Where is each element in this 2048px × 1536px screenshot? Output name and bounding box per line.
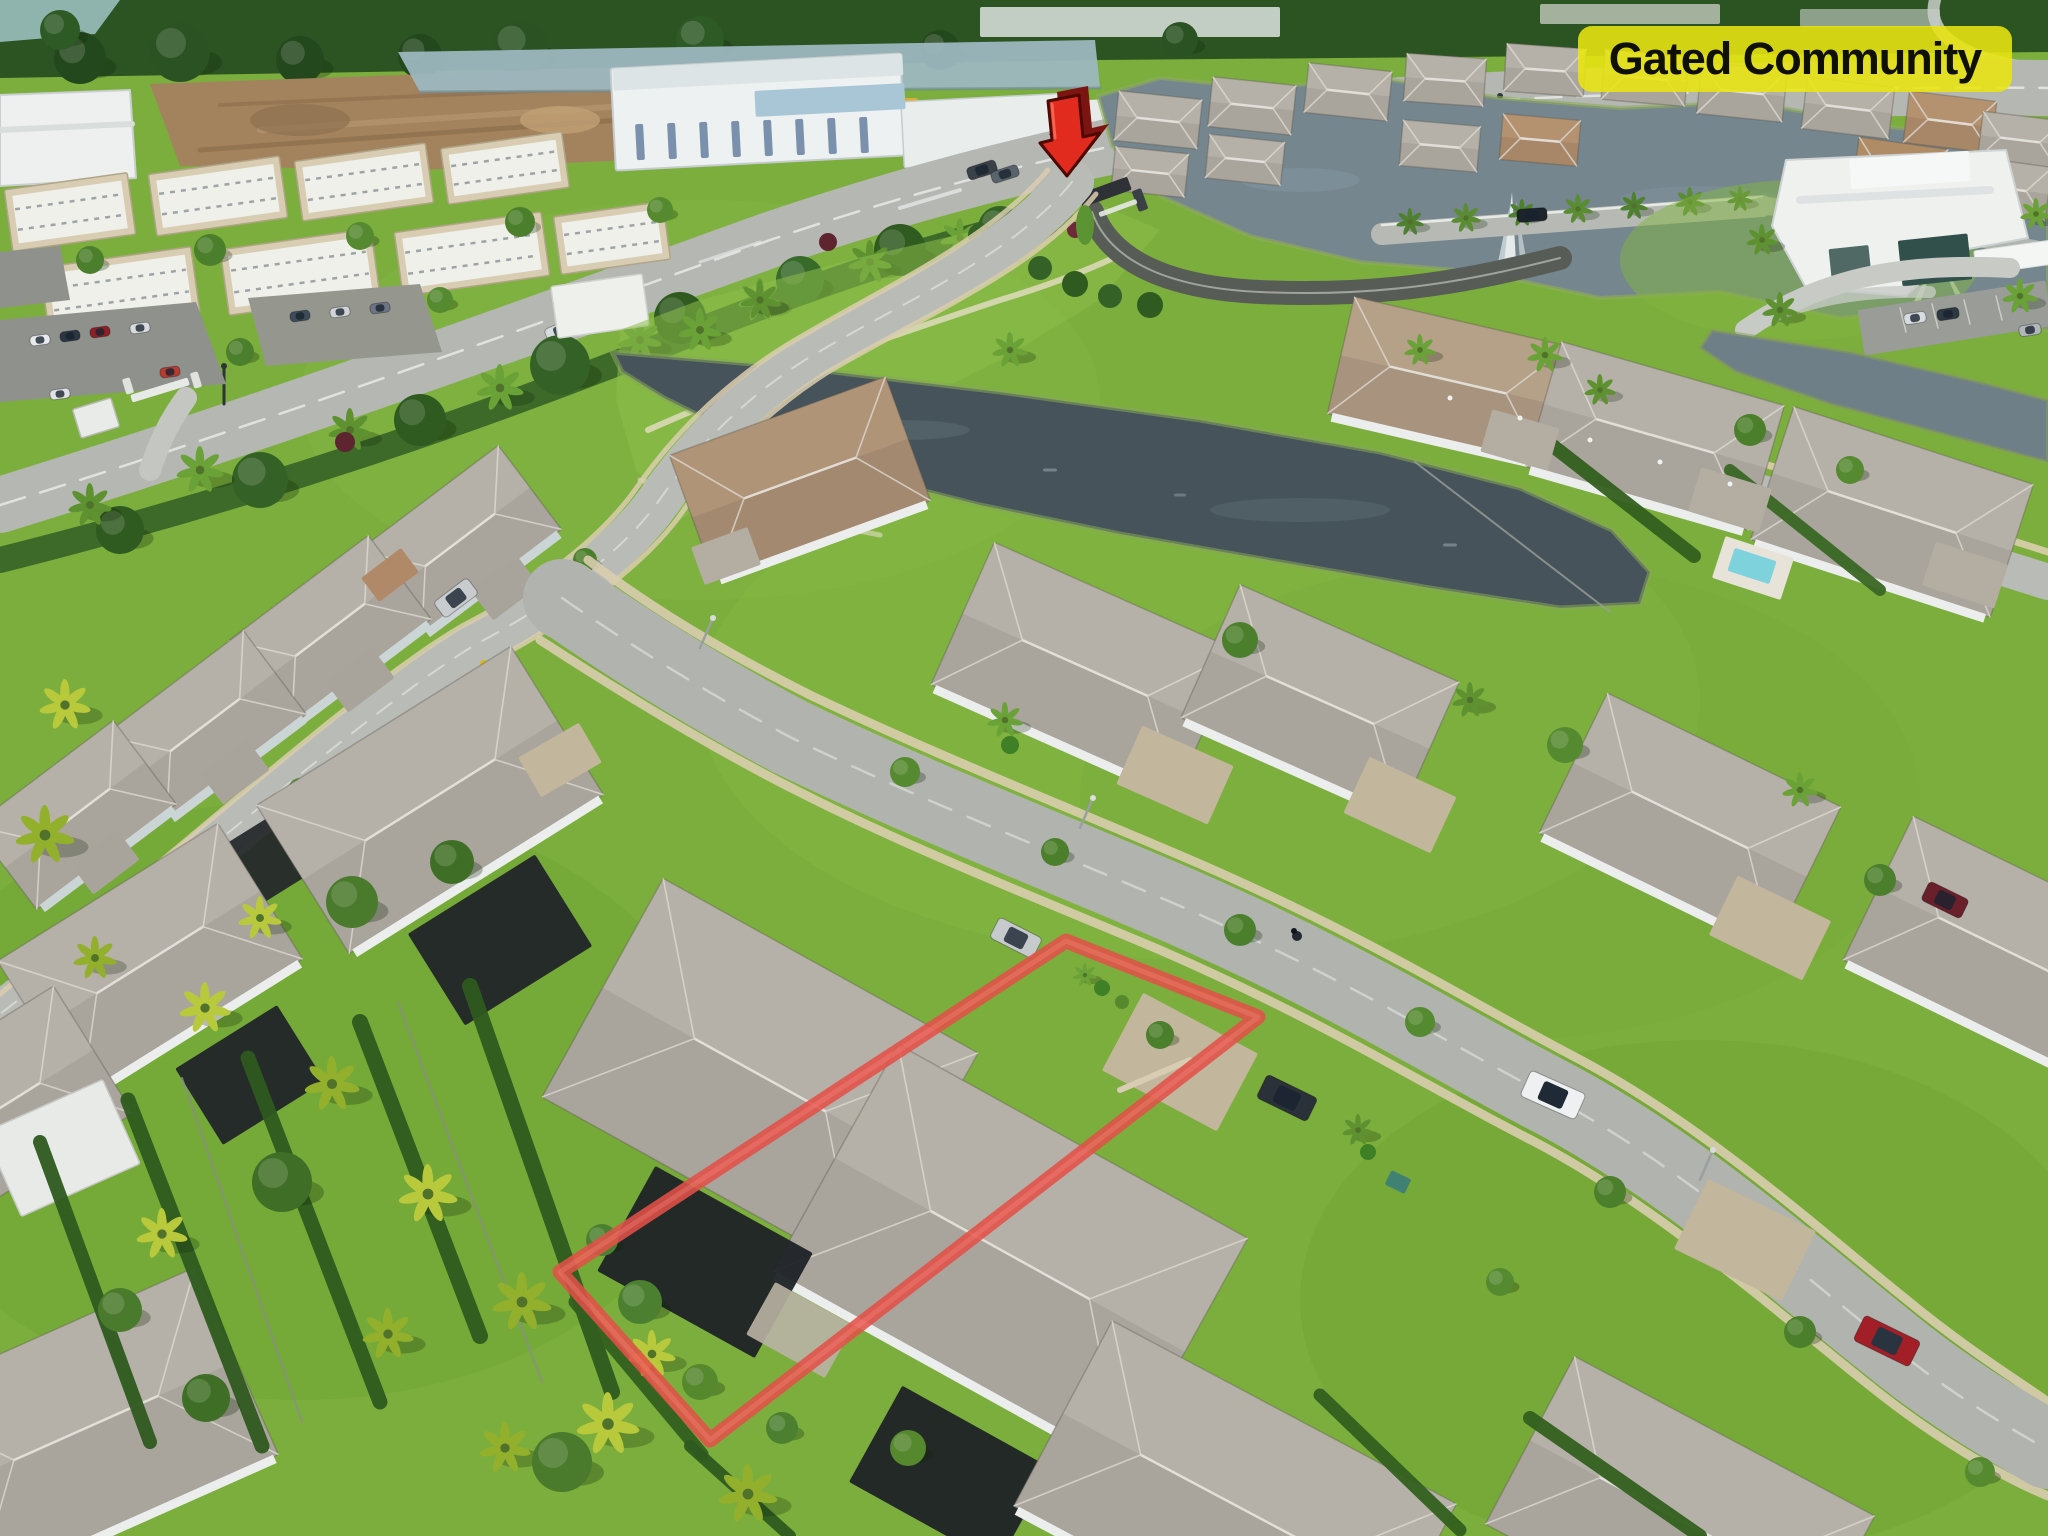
circle [1028,256,1052,280]
palm-trunk-top [1759,237,1765,243]
ellipse [250,104,350,136]
tree-highlight [498,26,526,54]
tree-highlight [1044,841,1058,855]
palm-trunk-top [1777,307,1783,313]
gated-community-badge: Gated Community [1578,26,2012,92]
tree-highlight [1408,1010,1423,1025]
palm-trunk-top [1007,347,1013,353]
palm-trunk-top [500,1443,509,1452]
tree-highlight [79,249,93,263]
tree-highlight [156,28,186,58]
house [1205,134,1285,186]
red-shrub [335,432,355,452]
tree-highlight [508,210,523,225]
palm-trunk-top [256,914,264,922]
parking-lot [248,284,442,366]
circle [1728,482,1733,487]
house [1499,114,1581,167]
circle [221,363,227,369]
palm-trunk-top [1463,215,1468,220]
palm-trunk-top [496,384,505,393]
tree-highlight [1839,459,1853,473]
palm-trunk-top [1355,1127,1361,1133]
palm-trunk-top [602,1418,614,1430]
tree-highlight [1737,417,1753,433]
tree-highlight [1551,731,1569,749]
palm-trunk-top [756,296,763,303]
car [289,310,310,323]
car [329,306,350,319]
car [159,366,180,379]
palm-trunk-top [40,830,51,841]
car [89,326,110,339]
circle [1518,416,1523,421]
tree-highlight [434,844,456,866]
rect [1540,4,1720,24]
circle [1115,995,1129,1009]
circle [1094,980,1110,996]
tree-highlight [536,341,566,371]
entry-median [1076,205,1094,245]
palm-trunk-top [1002,717,1008,723]
rect [1043,469,1057,472]
circle [1137,292,1163,318]
circle [1588,438,1593,443]
tree-highlight [538,1438,568,1468]
distant-buildings [980,7,1280,37]
palm-trunk-top [327,1079,337,1089]
tree-highlight [102,1292,124,1314]
palm-trunk-top [86,501,94,509]
ellipse [1210,498,1390,522]
tree-highlight [281,41,305,65]
circle [1062,271,1088,297]
house [1208,77,1297,136]
palm-trunk-top [1083,973,1087,977]
car [369,302,390,315]
tree-highlight [1597,1179,1613,1195]
palm-trunk-top [1417,347,1423,353]
tree-highlight [1227,917,1243,933]
palm-trunk-top [648,1350,657,1359]
tree-highlight [1787,1319,1803,1335]
tree-highlight [238,458,266,486]
tree-highlight [430,290,443,303]
palm-trunk-top [383,1329,392,1338]
palm-trunk-top [1542,352,1548,358]
polygon [0,246,70,308]
rect [1443,544,1457,547]
tree-highlight [44,14,64,34]
tree-highlight [331,881,357,907]
aerial-scene [0,0,2048,1536]
house [1399,120,1481,173]
palm-trunk-top [423,1189,434,1200]
tree-highlight [894,1434,912,1452]
palm-trunk-top [743,1489,754,1500]
circle [1710,1147,1716,1153]
palm-trunk-top [91,954,99,962]
palm-trunk-top [696,326,704,334]
tree-highlight [1489,1271,1503,1285]
palm-trunk-top [196,466,205,475]
circle [1291,928,1297,934]
rect [1174,494,1186,497]
circle [1448,396,1453,401]
palm-trunk-top [1407,219,1412,224]
rect [1800,9,1940,27]
circle [1658,460,1663,465]
tree-highlight [681,21,705,45]
car [1517,207,1548,222]
tree-highlight [349,225,363,239]
circle [1098,284,1122,308]
aerial-photo: Gated Community [0,0,2048,1536]
palm-trunk-top [1467,697,1473,703]
circle [1001,736,1019,754]
tree-highlight [187,1379,211,1403]
tree-highlight [622,1284,644,1306]
red-shrub [819,233,837,251]
house [1304,63,1393,122]
car [29,334,50,347]
tree-highlight [1968,1460,1983,1475]
palm-trunk-top [1575,206,1580,211]
car-roof [1525,210,1539,220]
tree-highlight [769,1415,785,1431]
palm-trunk-top [1597,387,1603,393]
house [1503,43,1586,96]
warehouse-left [0,90,136,186]
house [1114,91,1203,150]
car [59,330,80,343]
tree-highlight [258,1158,288,1188]
palm-trunk-top [2017,293,2023,299]
tree-highlight [399,399,425,425]
tree-highlight [686,1368,704,1386]
tree-highlight [893,760,908,775]
car [49,388,70,401]
car [129,322,150,335]
tree-highlight [1166,26,1184,44]
palm-trunk-top [517,1297,528,1308]
tree-highlight [197,237,213,253]
circle [710,615,716,621]
tree-highlight [1867,867,1883,883]
circle [1360,1144,1376,1160]
ellipse [520,106,600,134]
circle [1090,795,1096,801]
tree-highlight [1149,1024,1163,1038]
palm-trunk-top [2033,211,2039,217]
palm-trunk-top [200,1003,209,1012]
palm-trunk-top [157,1229,166,1238]
palm-trunk-top [60,700,69,709]
tree-highlight [650,200,663,213]
palm-trunk-top [1797,787,1803,793]
tree-highlight [229,341,243,355]
tree-highlight [1226,626,1244,644]
house [1403,53,1486,106]
palm-trunk-top [1631,203,1636,208]
